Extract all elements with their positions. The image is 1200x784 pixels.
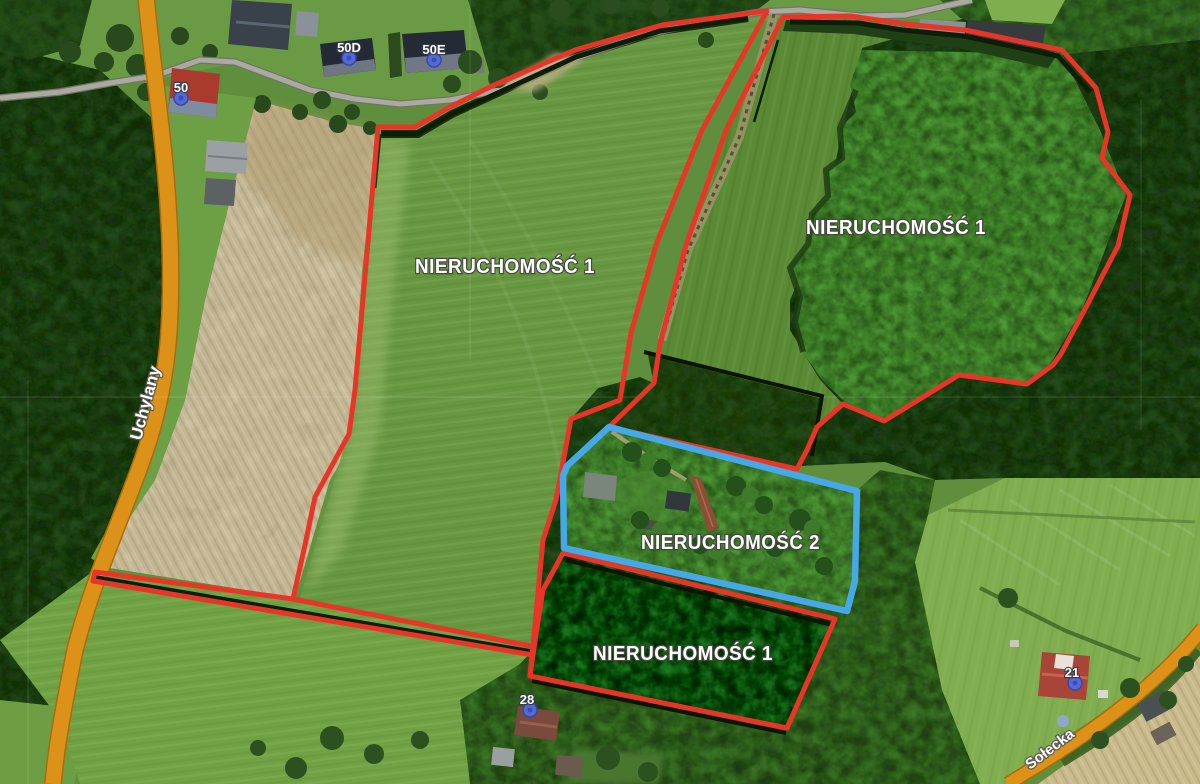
svg-text:NIERUCHOMOŚĆ 2: NIERUCHOMOŚĆ 2 [641,530,820,554]
svg-text:NIERUCHOMOŚĆ 1: NIERUCHOMOŚĆ 1 [415,254,595,278]
svg-text:NIERUCHOMOŚĆ 1: NIERUCHOMOŚĆ 1 [806,215,986,239]
svg-text:21: 21 [1065,665,1079,680]
svg-text:28: 28 [520,692,534,707]
svg-text:50D: 50D [337,40,361,55]
svg-text:50: 50 [174,80,188,95]
svg-text:50E: 50E [422,42,445,57]
svg-text:NIERUCHOMOŚĆ 1: NIERUCHOMOŚĆ 1 [593,641,773,665]
